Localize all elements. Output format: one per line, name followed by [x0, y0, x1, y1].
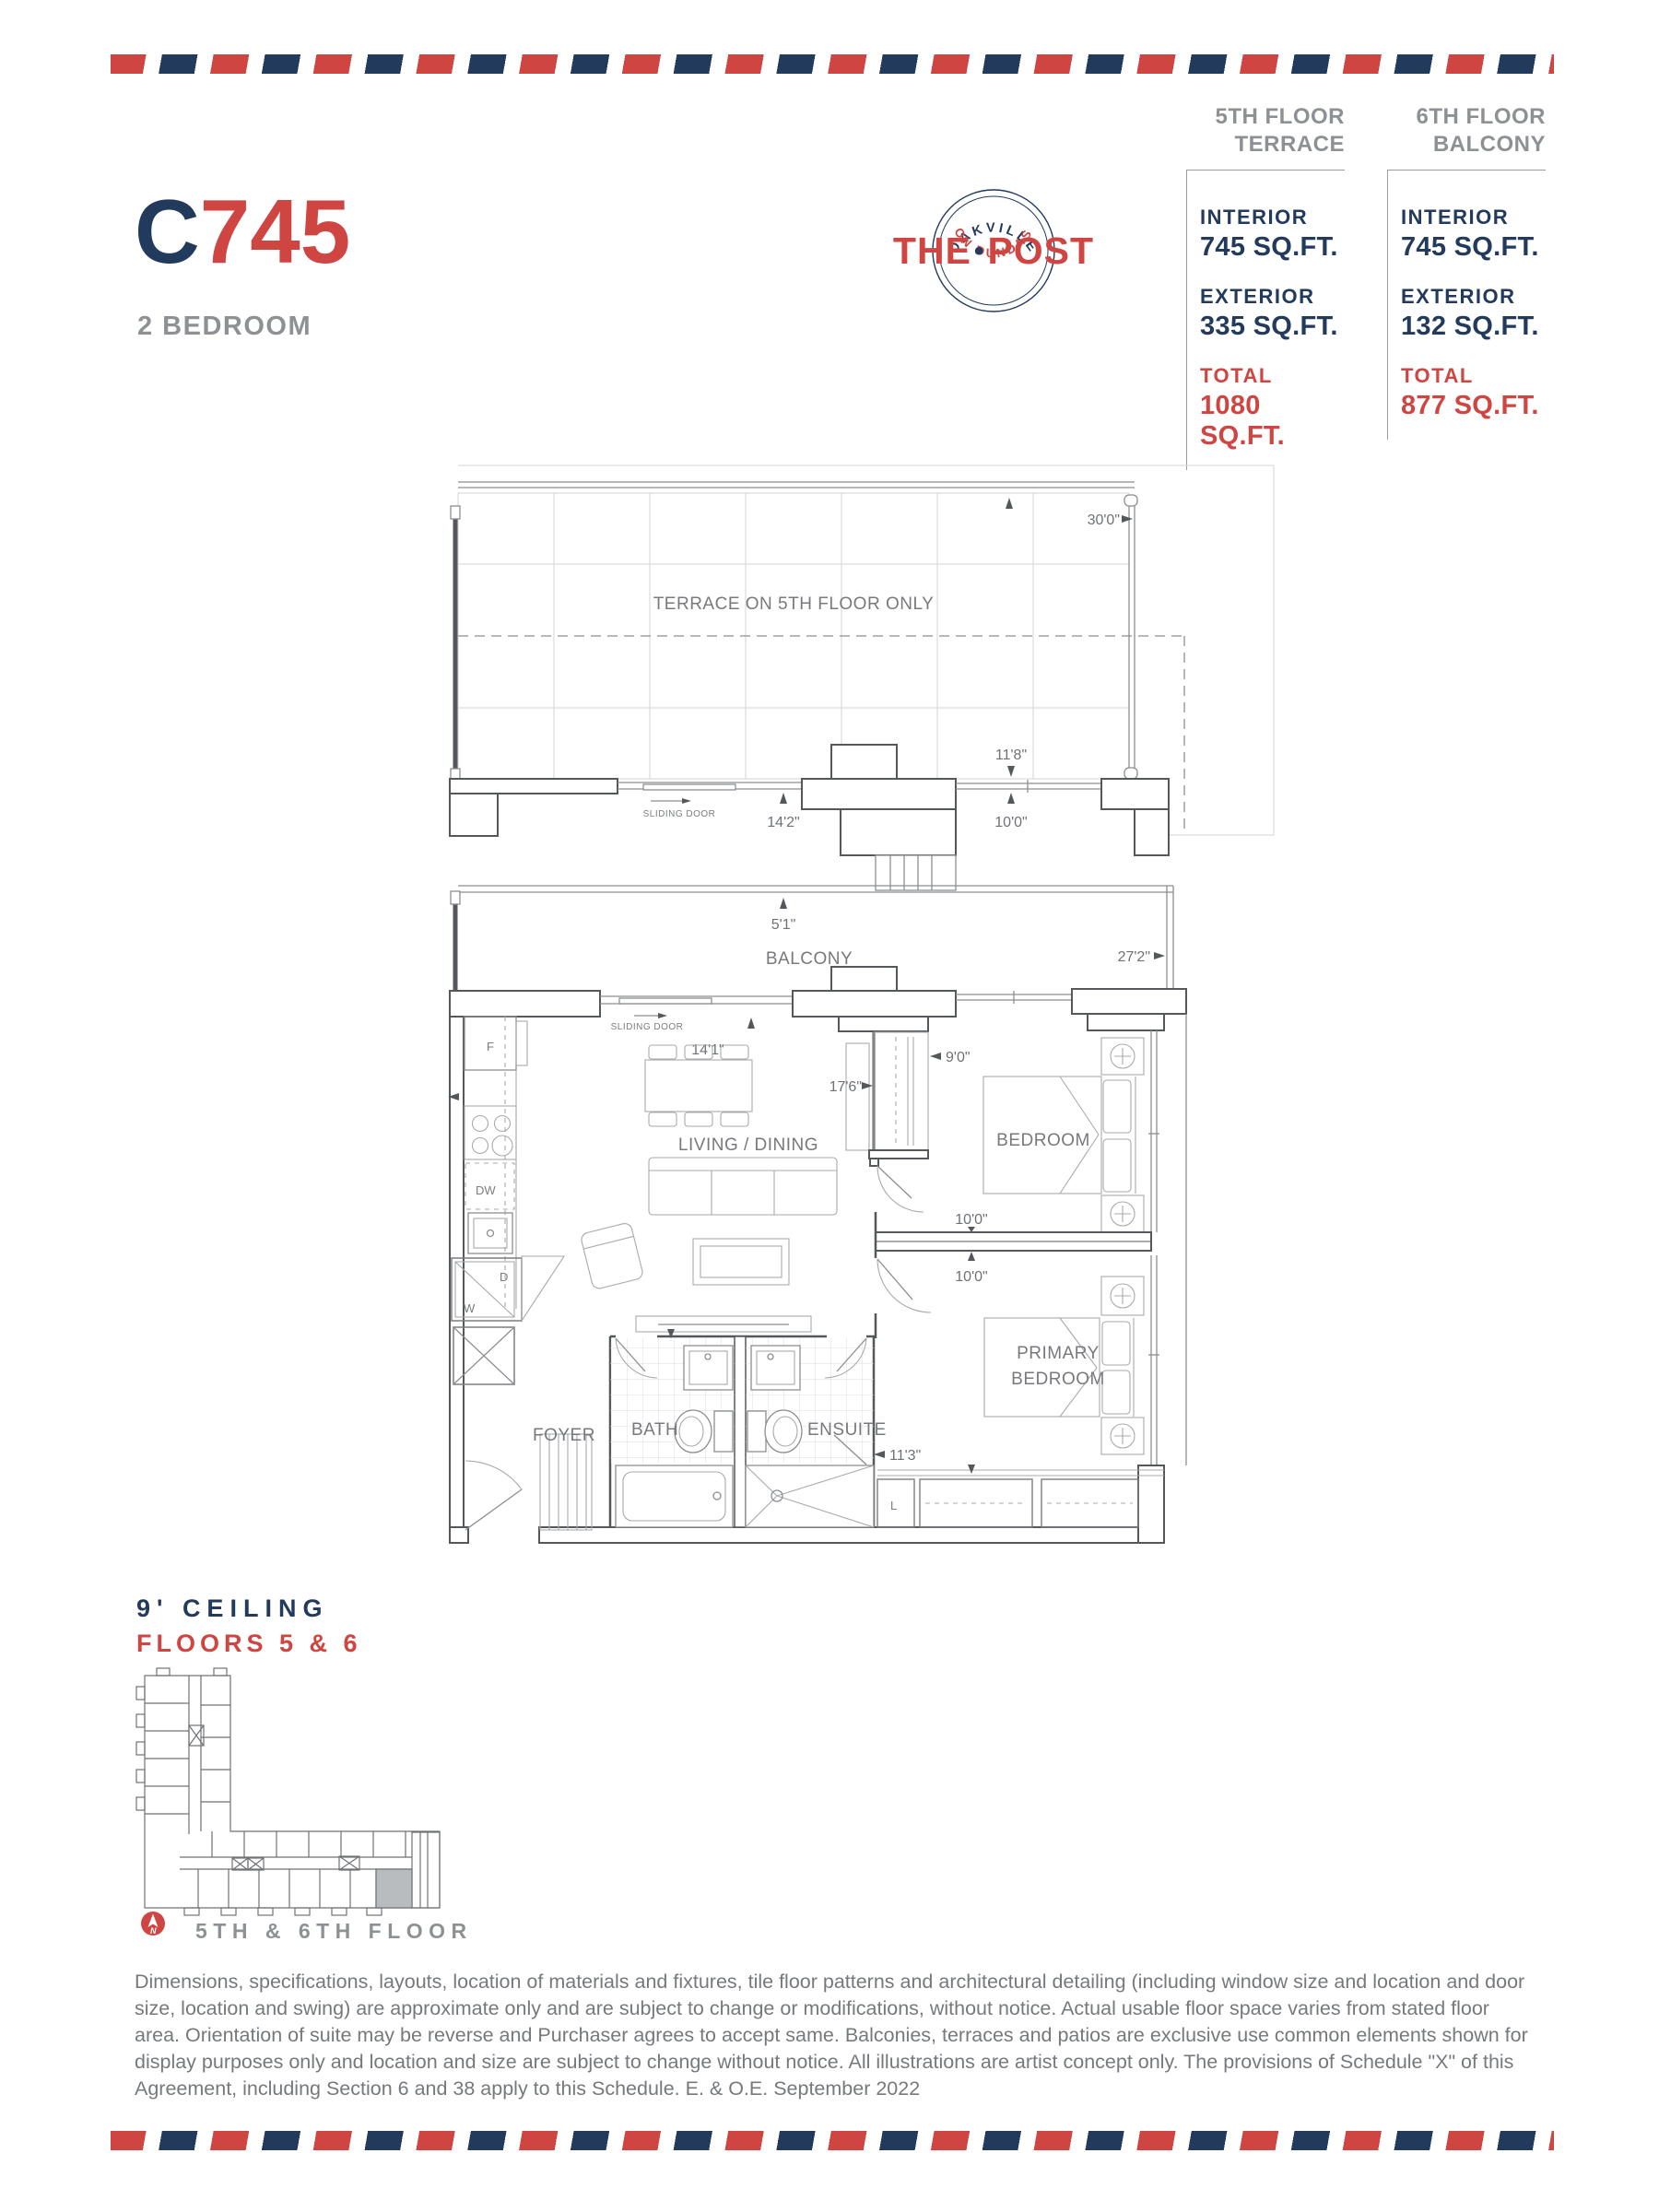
exterior-wall-top — [450, 967, 1186, 1031]
ceiling-height-label: 9' CEILING — [136, 1594, 328, 1623]
disclaimer-text: Dimensions, specifications, layouts, loc… — [135, 1969, 1532, 2102]
terrace-right-railing — [1124, 495, 1137, 779]
living-length-dim: 17'6" — [829, 1079, 862, 1095]
arrow-right-icon — [862, 1082, 873, 1089]
terrace-door-dim: 14'2" — [767, 815, 799, 830]
foyer-closet — [540, 1434, 592, 1530]
stats-balcony-location: BALCONY — [1387, 131, 1546, 159]
total-label: TOTAL — [1401, 364, 1546, 388]
north-arrow-icon: N — [141, 1912, 165, 1935]
unit-type: 2 BEDROOM — [137, 312, 312, 342]
coffee-table — [693, 1239, 789, 1285]
logo-wordmark: THE•POST — [893, 229, 1094, 272]
bedroom-door — [877, 1166, 924, 1212]
unit-number: 745 — [200, 181, 351, 282]
interior-label: INTERIOR — [1401, 206, 1546, 229]
washer-label: W — [464, 1301, 476, 1315]
dishwasher-label: DW — [476, 1183, 496, 1197]
total-value: 877 SQ.FT. — [1401, 391, 1546, 421]
stats-balcony-column: 6TH FLOOR BALCONY INTERIOR 745 SQ.FT. EX… — [1387, 103, 1546, 440]
living-dining-label: LIVING / DINING — [678, 1135, 818, 1155]
arrow-up-icon — [780, 898, 787, 909]
airmail-border-bottom — [111, 2131, 1554, 2150]
foyer-label: FOYER — [533, 1426, 595, 1445]
stats-terrace-location: TERRACE — [1186, 131, 1345, 159]
arrow-up-icon — [780, 793, 787, 804]
arrow-down-icon — [968, 1465, 975, 1474]
exterior-label: EXTERIOR — [1200, 285, 1345, 309]
arrow-up-icon — [747, 1018, 755, 1029]
total-value: 1080 SQ.FT. — [1200, 391, 1345, 452]
primary-door — [877, 1259, 931, 1312]
terrace-area-label: TERRACE ON 5TH FLOOR ONLY — [653, 594, 935, 614]
terrace-depth-dim-b: 10'0" — [994, 815, 1027, 830]
key-plan: N — [129, 1666, 470, 1943]
page-title: C745 — [135, 186, 350, 276]
balcony-depth-dim: 5'1" — [771, 917, 796, 933]
unit-floor-plan: 5'1" BALCONY 27'2" SLIDING DOOR 14'1" — [433, 853, 1318, 1599]
hall-closet — [846, 1032, 928, 1166]
stats-terrace-floor: 5TH FLOOR — [1186, 103, 1345, 131]
logo-dot: • — [974, 236, 985, 266]
arrow-up-icon — [968, 1252, 975, 1261]
entry-door — [465, 1461, 522, 1530]
stats-balcony-floor: 6TH FLOOR — [1387, 103, 1546, 131]
primary-bedroom-label-2: BEDROOM — [1011, 1370, 1105, 1389]
arrow-down-icon — [1007, 766, 1015, 777]
primary-width-dim: 10'0" — [955, 1269, 987, 1285]
stats-balcony-box: INTERIOR 745 SQ.FT. EXTERIOR 132 SQ.FT. … — [1387, 170, 1546, 440]
the-post-logo: OAKVILLE ON DUNDAS THE•POST — [866, 175, 1134, 330]
arrow-right-icon — [1122, 515, 1133, 523]
exterior-value: 132 SQ.FT. — [1401, 312, 1546, 342]
sliding-door-label: SLIDING DOOR — [611, 1022, 684, 1032]
arrow-right-icon — [1154, 952, 1165, 959]
stats-terrace-column: 5TH FLOOR TERRACE INTERIOR 745 SQ.FT. EX… — [1186, 103, 1345, 470]
bath-label: BATH — [631, 1420, 678, 1440]
stats-terrace-box: INTERIOR 745 SQ.FT. EXTERIOR 335 SQ.FT. … — [1186, 170, 1345, 470]
airmail-border-top — [111, 54, 1554, 74]
closet-dim: 9'0" — [946, 1050, 971, 1065]
primary-closets — [877, 1470, 1164, 1527]
tv-console — [636, 1316, 811, 1332]
interior-label: INTERIOR — [1200, 206, 1345, 229]
key-plan-caption: 5TH & 6TH FLOOR — [195, 1919, 473, 1944]
balcony-width-dim: 27'2" — [1118, 949, 1150, 965]
ensuite-label: ENSUITE — [807, 1420, 887, 1440]
fridge-label: F — [487, 1040, 494, 1053]
balcony-label: BALCONY — [766, 949, 853, 969]
dryer-label: D — [500, 1270, 508, 1284]
armchair — [580, 1222, 643, 1290]
bedroom-divider-wall — [876, 1212, 1151, 1338]
unit-letter: C — [135, 181, 200, 282]
north-label: N — [150, 1926, 157, 1935]
arrow-right-icon — [682, 798, 691, 804]
terrace-width-dim: 30'0" — [1088, 512, 1120, 528]
bedroom-label: BEDROOM — [996, 1131, 1090, 1150]
arrow-left-icon — [874, 1451, 885, 1458]
arrow-left-icon — [930, 1053, 941, 1060]
terrace-floor-plan: TERRACE ON 5TH FLOOR ONLY 30'0" SLIDING … — [433, 456, 1300, 917]
linen-label: L — [890, 1499, 897, 1512]
interior-value: 745 SQ.FT. — [1200, 232, 1345, 263]
arrow-up-icon — [1006, 498, 1013, 509]
ceiling-floors-label: FLOORS 5 & 6 — [136, 1630, 362, 1658]
total-label: TOTAL — [1200, 364, 1345, 388]
arrow-up-icon — [1007, 793, 1015, 804]
exterior-value: 335 SQ.FT. — [1200, 312, 1345, 342]
terrace-depth-dim-a: 11'8" — [995, 747, 1027, 763]
bedroom-width-dim: 10'0" — [955, 1212, 987, 1228]
interior-value: 745 SQ.FT. — [1401, 232, 1546, 263]
primary-length-dim: 11'3" — [889, 1448, 921, 1464]
primary-bedroom — [984, 1277, 1144, 1454]
sofa — [649, 1158, 837, 1215]
exterior-label: EXTERIOR — [1401, 285, 1546, 309]
arrow-right-icon — [658, 1013, 667, 1018]
highlighted-unit — [376, 1869, 412, 1908]
primary-bedroom-label-1: PRIMARY — [1017, 1344, 1100, 1363]
terrace-sliding-door-label: SLIDING DOOR — [643, 809, 716, 819]
